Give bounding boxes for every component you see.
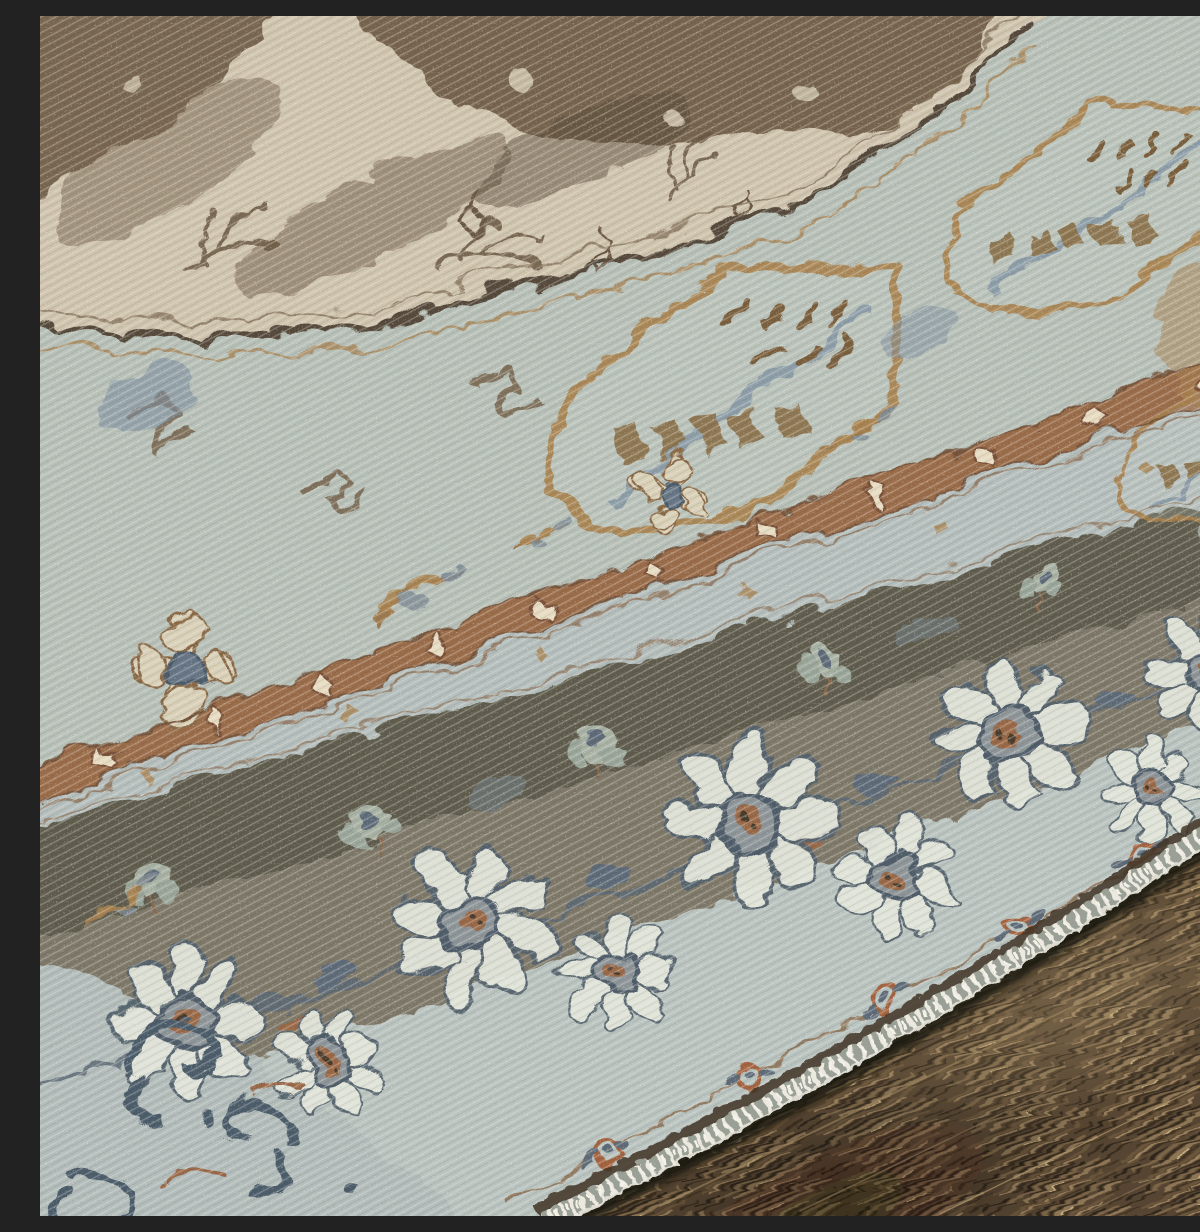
rug-photo: Close-up photograph of a faded vintage-s…: [40, 16, 1200, 1216]
